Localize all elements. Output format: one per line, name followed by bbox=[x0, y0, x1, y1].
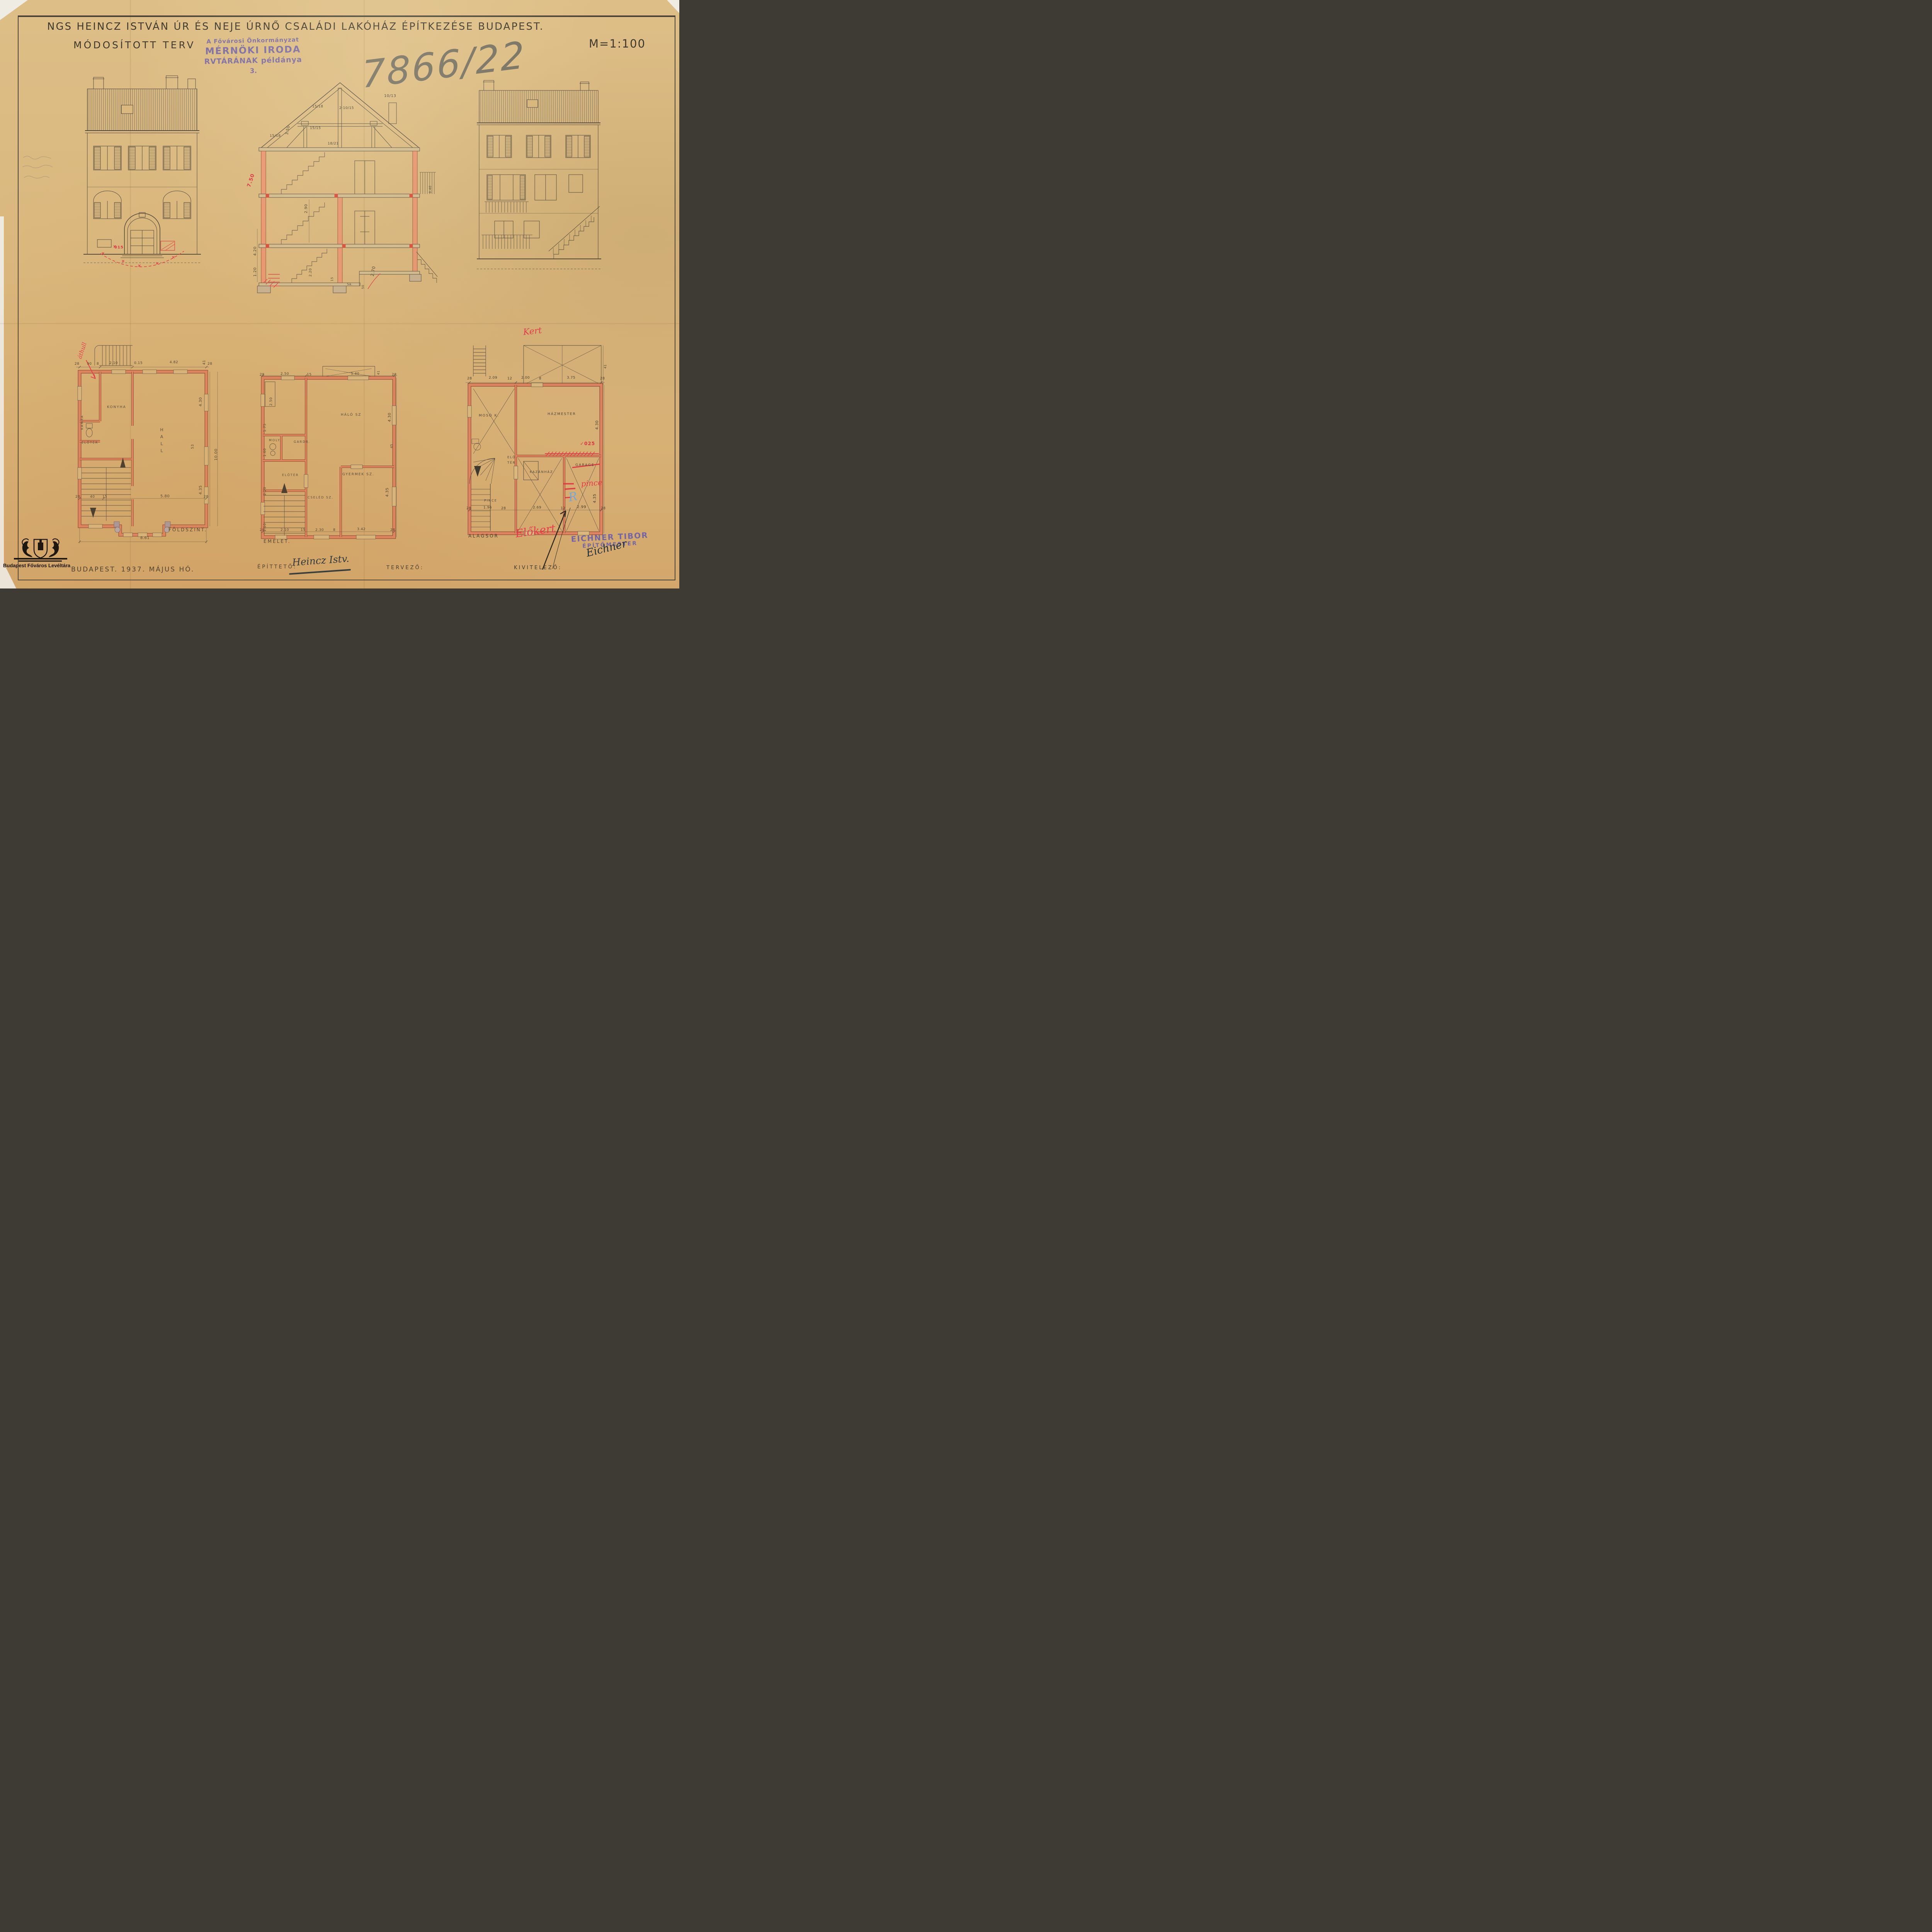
annotation-label: 15 bbox=[102, 495, 107, 499]
annotation-label: 8 bbox=[97, 362, 99, 366]
annotation-label: KAMRA bbox=[81, 415, 84, 430]
annotation-label: 8.61 bbox=[140, 536, 150, 540]
annotation-label: 28 bbox=[467, 377, 472, 381]
annotation-label: 2.09 bbox=[489, 376, 497, 380]
annotation-label: pince bbox=[581, 478, 602, 488]
annotation-label: ELŐTÉR bbox=[82, 441, 98, 444]
annotation-label: 0.40 bbox=[429, 185, 432, 193]
caption-foldszint: FÖLDSZINT. bbox=[168, 527, 207, 532]
caption-alagsor: ALAGSOR bbox=[468, 533, 499, 539]
annotation-label: 41 bbox=[203, 360, 206, 365]
annotation-label: HALL bbox=[160, 427, 164, 455]
annotation-label: 4.30 bbox=[388, 413, 392, 422]
annotation-label: 4.82 bbox=[170, 361, 178, 364]
annotation-label: 28 bbox=[75, 495, 80, 499]
annotation-label: 4.35 bbox=[593, 494, 597, 503]
annotation-label: 12 bbox=[507, 377, 512, 381]
annotation-label: 0.15 bbox=[134, 362, 143, 365]
annotation-label: TÉR bbox=[507, 461, 516, 464]
annotation-label: 8 bbox=[539, 377, 541, 381]
annotation-label: × bbox=[155, 261, 159, 265]
annotation-label: 1.96 bbox=[483, 506, 492, 510]
coat-of-arms-icon bbox=[3, 537, 77, 562]
scan-edge-left bbox=[0, 216, 4, 588]
annotation-label: 2.00 bbox=[521, 376, 530, 380]
signature-underline bbox=[289, 569, 351, 575]
builder-signature: Heincz Istv. bbox=[292, 553, 349, 568]
annotation-label: 8 bbox=[333, 529, 335, 532]
annotation-label: ELŐ bbox=[507, 456, 516, 459]
scale-annotation: M=1:100 bbox=[589, 37, 646, 50]
annotation-label: 41 bbox=[377, 371, 380, 375]
annotation-label: 15/18 bbox=[270, 134, 281, 138]
annotation-label: 28 bbox=[390, 529, 395, 532]
fold-crease-horizontal bbox=[0, 323, 679, 324]
annotation-label: MOLY. bbox=[269, 439, 281, 442]
annotation-label: 15 bbox=[307, 373, 311, 377]
annotation-label: 28 bbox=[260, 529, 264, 532]
annotation-label: 28 bbox=[600, 377, 605, 381]
annotation-label: × bbox=[172, 255, 175, 259]
annotation-label: 28 bbox=[501, 507, 506, 510]
annotation-label: ✓025 bbox=[580, 441, 595, 446]
annotation-label: KONYHA bbox=[107, 406, 126, 409]
annotation-label: × bbox=[101, 251, 105, 255]
plan-emelet: 282.50155.4028412.501.751.602.201.104.30… bbox=[260, 359, 403, 549]
annotation-label: 2.10 bbox=[109, 362, 118, 365]
scan-edge-top-right bbox=[667, 0, 679, 13]
stamp-line-4: 3. bbox=[194, 66, 313, 76]
page-subtitle: MÓDOSÍTOTT TERV bbox=[73, 39, 196, 51]
annotation-label: GYERMEK SZ. bbox=[342, 473, 374, 476]
annotation-label: 10.00 bbox=[214, 449, 218, 461]
plan-foldszint: 289082.100.154.8241284.30534.3510.002840… bbox=[75, 340, 221, 551]
annotation-label: 4.35 bbox=[199, 485, 203, 495]
annotation-label: 41 bbox=[604, 364, 607, 369]
annotation-label: 2.20 bbox=[309, 268, 313, 277]
annotation-label: 1.60 bbox=[264, 448, 267, 457]
annotation-label: 28 bbox=[392, 373, 396, 377]
page-title: NGS HEINCZ ISTVÁN ÚR ÉS NEJE ÚRNŐ CSALÁD… bbox=[47, 21, 544, 32]
archive-logo: Budapest Főváros Levéltára bbox=[3, 537, 77, 574]
annotation-label: 28 bbox=[260, 373, 264, 377]
annotation-label: 4.30 bbox=[199, 397, 203, 406]
rear-elevation-drawing bbox=[470, 77, 607, 278]
annotation-label: 50 bbox=[362, 285, 365, 289]
annotation-label: × bbox=[113, 244, 117, 248]
annotation-label: 15 bbox=[331, 277, 334, 281]
annotation-label: 1.75 bbox=[264, 423, 267, 432]
annotation-label: 2.50 bbox=[281, 372, 289, 376]
annotation-label: 15 bbox=[301, 529, 305, 532]
annotation-label: 2.20 bbox=[264, 487, 267, 495]
annotation-label: 3.42 bbox=[357, 528, 366, 531]
annotation-label: 40 bbox=[90, 495, 95, 499]
annotation-label: × bbox=[121, 259, 125, 263]
archive-logo-text: Budapest Főváros Levéltára bbox=[3, 563, 70, 568]
annotation-label: 18/21 bbox=[328, 142, 338, 146]
annotation-label: 1.20 bbox=[253, 267, 257, 277]
designer-label: TERVEZŐ: bbox=[386, 565, 424, 571]
stamp-line-2: MÉRNÖKI IRODA bbox=[193, 44, 313, 57]
annotation-label: 28 bbox=[466, 507, 471, 510]
annotation-label: 2.50 bbox=[270, 397, 273, 406]
stamp-line-3: RVTÁRÁNAK példánya bbox=[193, 55, 313, 66]
annotation-label: 3.75 bbox=[567, 376, 575, 380]
annotation-label: 28 bbox=[75, 362, 79, 366]
annotation-label: 4.35 bbox=[386, 488, 389, 497]
annotation-label: 5.80 bbox=[160, 495, 170, 498]
caption-emelet: EMELET. bbox=[264, 539, 291, 544]
annotation-label: R bbox=[568, 491, 578, 503]
annotation-label: 4.30 bbox=[595, 420, 599, 430]
scanned-blueprint-page: NGS HEINCZ ISTVÁN ÚR ÉS NEJE ÚRNŐ CSALÁD… bbox=[0, 0, 679, 588]
arrow-annotation bbox=[537, 507, 572, 573]
annotation-label: 2.30 bbox=[315, 529, 324, 532]
annotation-label: PINCE bbox=[484, 499, 497, 502]
annotation-label: HÁZMESTER bbox=[548, 413, 576, 416]
annotation-label: CSELÉD SZ. bbox=[308, 496, 333, 499]
annotation-label: 15/18 bbox=[312, 105, 323, 109]
torn-corner-top-left bbox=[0, 0, 28, 20]
annotation-label: 28 bbox=[207, 362, 212, 366]
annotation-label: 4.20 bbox=[253, 247, 257, 256]
annotation-label: 2.10 bbox=[281, 529, 289, 532]
annotation-label: 45 bbox=[390, 444, 393, 448]
cross-section-drawing: 10/1315/182·10/153.5015/1515/1818/217.50… bbox=[240, 77, 438, 298]
date-annotation: BUDAPEST. 1937. MÁJUS HÓ. bbox=[71, 566, 194, 573]
annotation-label: Sa. bbox=[347, 283, 352, 286]
annotation-label: 15/15 bbox=[310, 127, 321, 130]
archive-office-stamp: A Fővárosi Önkormányzat MÉRNÖKI IRODA RV… bbox=[193, 36, 313, 76]
annotation-label: 5.40 bbox=[351, 372, 359, 376]
annotation-label: Kert bbox=[523, 327, 542, 337]
pencil-scribbles bbox=[22, 154, 60, 189]
annotation-label: 10/13 bbox=[384, 94, 396, 98]
annotation-label: 2·10/15 bbox=[339, 107, 354, 110]
front-elevation-drawing: 015×××××× bbox=[76, 73, 209, 279]
annotation-label: 28 bbox=[204, 495, 208, 499]
annotation-label: GARAGE bbox=[575, 464, 595, 467]
annotation-label: 2.99 bbox=[577, 505, 586, 509]
annotation-label: ELŐTÉR bbox=[282, 474, 299, 477]
annotation-label: × bbox=[138, 264, 141, 268]
annotation-label: 2.90 bbox=[304, 204, 308, 213]
annotation-label: 53 bbox=[191, 444, 195, 449]
annotation-label: HÁLÓ SZ bbox=[341, 413, 361, 417]
annotation-label: 28 bbox=[601, 507, 605, 510]
annotation-label: 90 bbox=[87, 362, 92, 366]
annotation-label: MOSÓ K. bbox=[479, 414, 499, 418]
builder-label: ÉPÍTTETŐ: bbox=[257, 564, 297, 570]
annotation-label: GARDR. bbox=[294, 440, 310, 444]
annotation-label: KAZÁNHÁZ bbox=[530, 471, 553, 474]
